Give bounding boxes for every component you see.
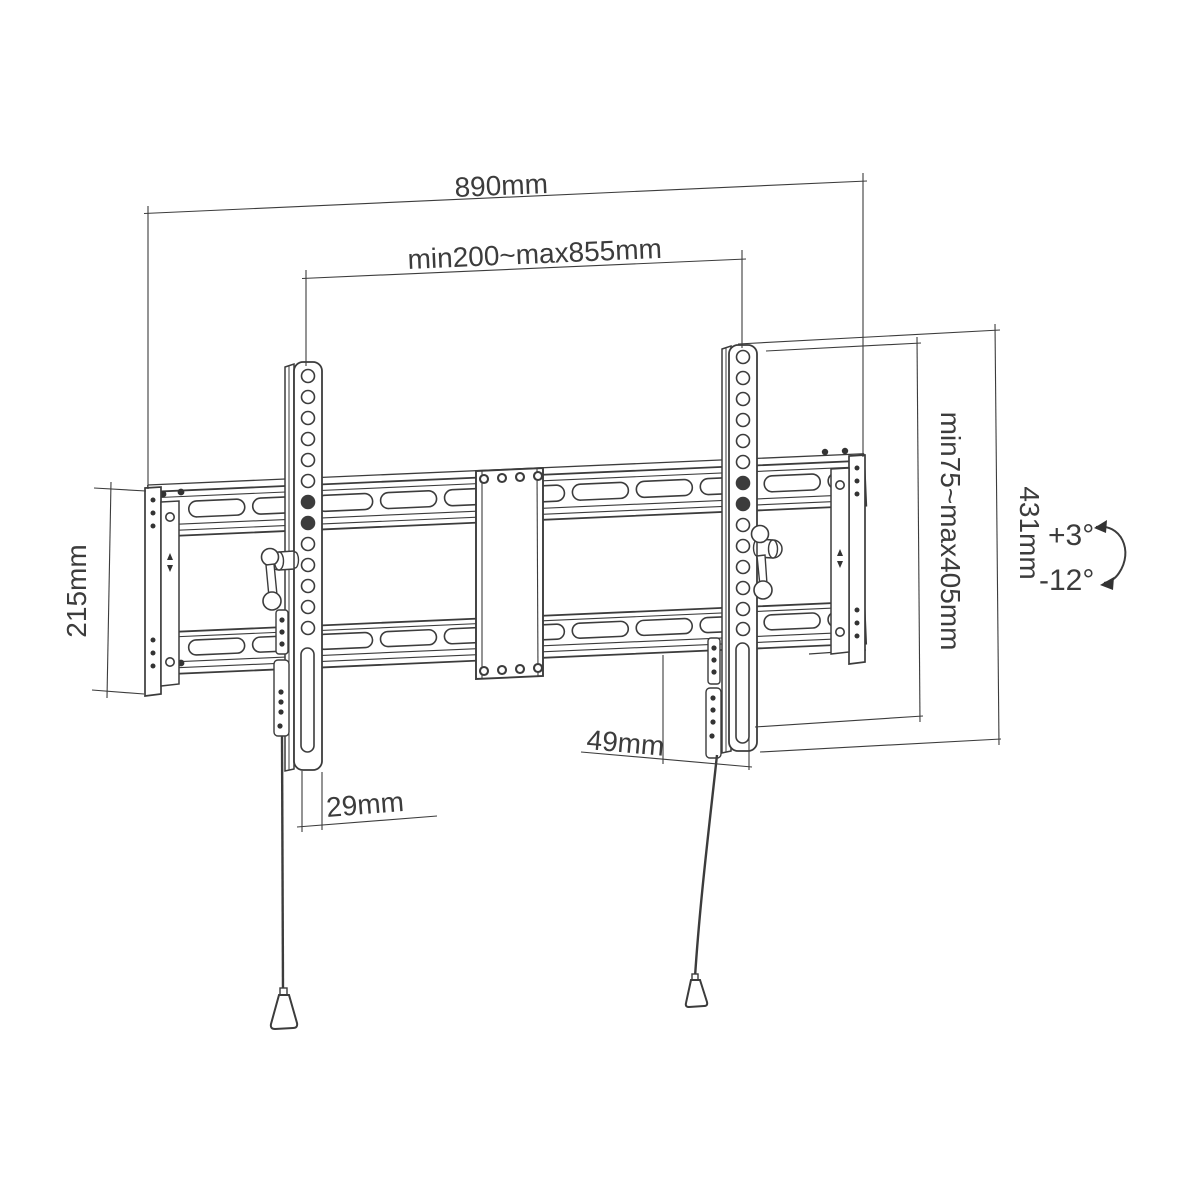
dim-label-horizontal-adjust-range: min200~max855mm	[407, 233, 663, 275]
right-end-connector	[831, 455, 865, 664]
pull-cord-right	[686, 755, 717, 1007]
left-arm-slot	[301, 648, 314, 752]
dim-label-right-bottom-offset: 49mm	[585, 724, 665, 762]
dim-label-left-bottom-offset: 29mm	[325, 786, 405, 823]
cord-pull-cone	[271, 995, 297, 1029]
tilt-down-label: -12°	[1039, 564, 1094, 597]
left-arm-latch	[274, 610, 289, 736]
dim-label-wall-plate-height: 215mm	[61, 544, 92, 637]
dim-label-overall-width: 890mm	[454, 168, 549, 203]
cord-pull-cone	[686, 980, 707, 1007]
left-end-connector	[145, 487, 179, 696]
tv-mount-technical-drawing-page: 890mm min200~max855mm 215mm min75~max405…	[0, 0, 1200, 1200]
tv-mount-technical-drawing: 890mm min200~max855mm 215mm min75~max405…	[0, 0, 1200, 1200]
center-connector-plate	[476, 468, 543, 679]
dim-overall-width: 890mm	[144, 168, 867, 489]
right-arm-slot	[736, 643, 749, 743]
right-bracket-arm	[706, 345, 782, 758]
tilt-angle-annotation: +3° -12°	[1039, 519, 1125, 597]
dim-left-bottom-offset: 29mm	[297, 771, 437, 832]
pull-cord-left	[271, 736, 297, 1029]
dim-bracket-height: 431mm	[738, 324, 1045, 752]
tilt-arc-arrow-icon	[1096, 527, 1125, 583]
dim-wall-plate-height: 215mm	[61, 482, 146, 698]
dim-horizontal-adjust-range: min200~max855mm	[302, 233, 746, 366]
left-bracket-arm	[262, 362, 323, 771]
tilt-up-label: +3°	[1048, 519, 1094, 552]
right-arm-latch	[706, 638, 721, 758]
dim-label-vertical-adjust-range: min75~max405mm	[935, 412, 966, 651]
